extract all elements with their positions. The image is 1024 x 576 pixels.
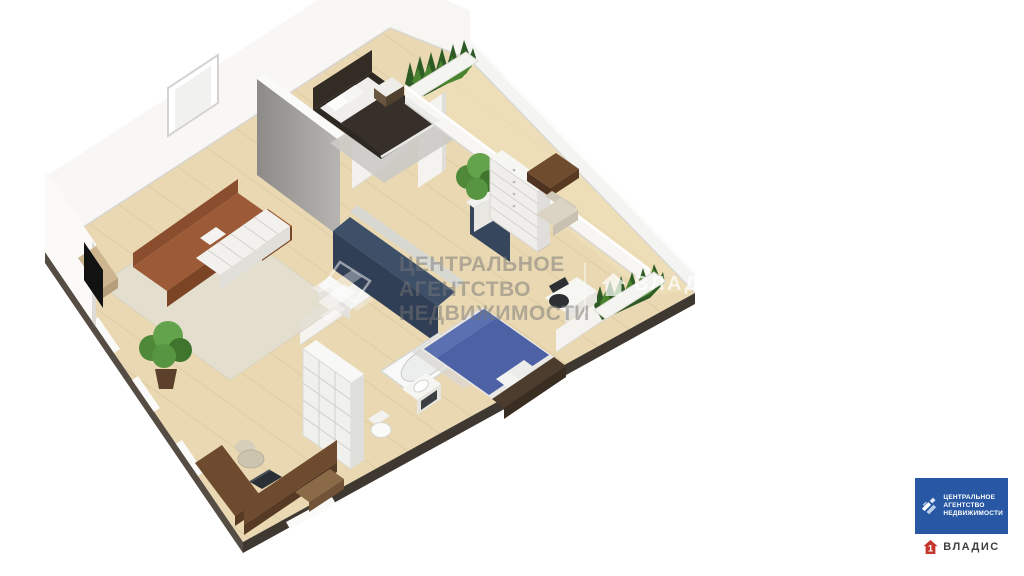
badge-line-1: ЦЕНТРАЛЬНОЕ [943, 494, 1003, 502]
vladis-brand-text: ВЛАДИС [943, 541, 999, 553]
vladis-brand: 1 ВЛАДИС [915, 538, 1008, 556]
badge-line-3: НЕДВИЖИМОСТИ [943, 510, 1003, 518]
agency-badge-text: ЦЕНТРАЛЬНОЕ АГЕНТСТВО НЕДВИЖИМОСТИ [943, 494, 1003, 518]
watermark-line-3: НЕДВИЖИМОСТИ [399, 302, 590, 327]
watermark-vladis: ВЛАДИС [600, 272, 735, 297]
agency-badge: ЦЕНТРАЛЬНОЕ АГЕНТСТВО НЕДВИЖИМОСТИ [915, 478, 1008, 534]
floorplan-screenshot: ЦЕНТРАЛЬНОЕ АГЕНТСТВО НЕДВИЖИМОСТИ ВЛАДИ… [0, 0, 1024, 576]
watermark-divider [584, 263, 586, 313]
badge-line-2: АГЕНТСТВО [943, 502, 1003, 510]
watermark-line-2: АГЕНТСТВО [399, 278, 590, 303]
vladis-house-icon: 1 [923, 539, 938, 555]
watermark-line-1: ЦЕНТРАЛЬНОЕ [399, 253, 590, 278]
agency-logo-icon [920, 492, 939, 520]
house-icon [600, 272, 627, 297]
watermark-vladis-text: ВЛАДИС [634, 273, 735, 296]
vladis-house-number: 1 [928, 544, 933, 554]
watermark-agency: ЦЕНТРАЛЬНОЕ АГЕНТСТВО НЕДВИЖИМОСТИ [399, 253, 590, 327]
